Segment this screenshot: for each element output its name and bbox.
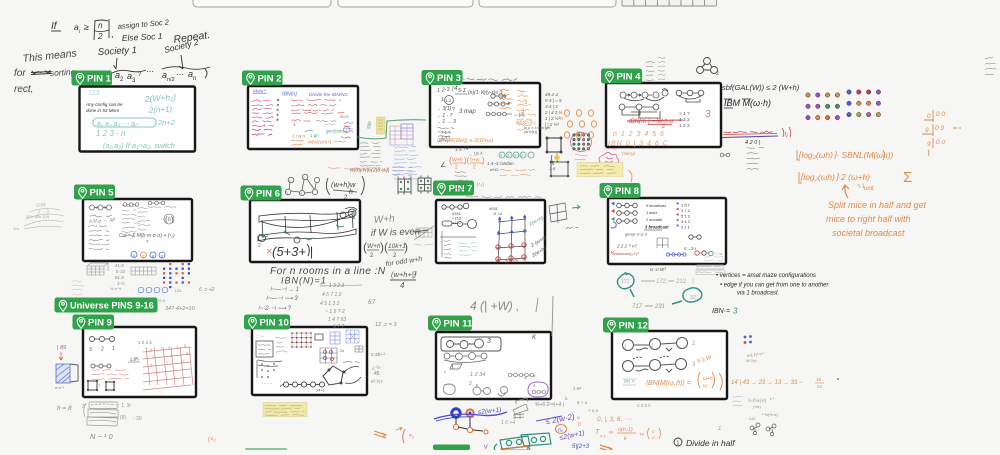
- svg-text:?: ?: [452, 107, 455, 113]
- svg-text:≥: ≥: [84, 22, 89, 32]
- svg-text:9: 9: [925, 127, 929, 134]
- svg-text:30% 13σ 10η: 30% 13σ 10η: [26, 215, 49, 219]
- svg-text:0 σ: 0 σ: [936, 139, 946, 146]
- svg-text:for: for: [14, 68, 26, 79]
- svg-text:½ σ ½: ½ σ ½: [110, 286, 122, 291]
- svg-text:2: 2: [455, 165, 458, 171]
- svg-text:Society 1: Society 1: [98, 45, 138, 58]
- svg-text:PIN 4: PIN 4: [617, 71, 642, 82]
- svg-text:W(n)(±m)+|: W(n)(±m)+|: [308, 140, 331, 145]
- svg-text:3 ¢ 2: 3 ¢ 2: [681, 219, 691, 224]
- svg-text:67: 67: [368, 299, 376, 306]
- svg-text:0, |, 3, 6, ⋯·: 0, |, 3, 6, ⋯·: [597, 416, 633, 423]
- svg-text:1 t w n: 1 t w n: [292, 134, 305, 139]
- svg-text:172: 172: [621, 279, 630, 285]
- svg-text:½·ε: ½·ε: [158, 297, 165, 303]
- svg-text:Universe PINS 9-16: Universe PINS 9-16: [70, 300, 154, 310]
- svg-text:(w+h+|): (w+h+|): [391, 270, 417, 279]
- svg-text:4 (| +W) ,: 4 (| +W) ,: [470, 299, 519, 313]
- svg-text:2 morado: 2 morado: [645, 218, 662, 222]
- svg-text:(¹₃): (¹₃): [477, 182, 484, 188]
- svg-text:⊢—⊣ ⟶ 3: ⊢—⊣ ⟶ 3: [266, 295, 298, 302]
- svg-text:| 89: | 89: [57, 345, 66, 351]
- svg-text:): ): [404, 240, 408, 254]
- svg-text:4: 4: [400, 281, 405, 290]
- svg-text:• edge if you can get from o: • edge if you can get from one to anothe…: [720, 283, 830, 289]
- svg-text:⌈log₂(ωh)⌉· SBNL(M(ωh)): ⌈log₂(ωh)⌉· SBNL(M(ωh)): [798, 150, 894, 160]
- svg-text:1 twist: 1 twist: [646, 211, 658, 215]
- svg-text:h = 8: h = 8: [57, 405, 72, 412]
- svg-text:n(n-1): n(n-1): [618, 427, 633, 433]
- svg-text:PIN 3: PIN 3: [437, 73, 461, 84]
- svg-text:3: 3: [733, 307, 738, 316]
- svg-text:PIN 12: PIN 12: [619, 320, 648, 331]
- svg-text:unit: unit: [864, 186, 874, 192]
- svg-text:1 2 3 4: 1 2 3 4: [138, 340, 152, 345]
- svg-text:34?·4+2=10: 34?·4+2=10: [165, 306, 196, 312]
- svg-text:2: 2: [651, 435, 655, 440]
- svg-text:n/2: n/2: [167, 77, 175, 83]
- svg-text:3: 3: [89, 347, 92, 353]
- svg-text:1: 1: [718, 426, 721, 432]
- svg-text:¹broadcast(¿Σ)²: ¹broadcast(¿Σ)²: [611, 251, 639, 256]
- svg-text:(n)(1·ℵ)(y-ε)≡ 3: (n)(1·ℵ)(y-ε)≡ 3: [468, 90, 503, 96]
- svg-text:w½2: w½2: [490, 167, 499, 172]
- svg-text:(sorry): (sorry): [622, 151, 635, 156]
- svg-text:5|(2+3: 5|(2+3: [572, 444, 590, 450]
- svg-text:Aℳ·σ: Aℳ·σ: [88, 219, 101, 224]
- svg-text:3·4 | 3: 3·4 | 3: [545, 104, 558, 109]
- svg-text:5·4 | = 5: 5·4 | = 5: [545, 98, 562, 103]
- svg-text:1 2 3 - n: 1 2 3 - n: [96, 129, 126, 138]
- svg-text:+ o o: + o o: [588, 408, 599, 413]
- svg-text:via 1 broadcast.: via 1 broadcast.: [737, 291, 779, 297]
- svg-text:9: 9: [927, 141, 931, 148]
- svg-text:Σ: Σ: [903, 169, 912, 186]
- svg-text:172,: 172,: [656, 279, 668, 285]
- svg-text:· 123: · 123: [172, 288, 182, 293]
- svg-text:2: 2: [662, 124, 665, 130]
- svg-text:σ→3·ε: σ→3·ε: [684, 246, 696, 251]
- svg-text:Im =: Im =: [624, 379, 636, 385]
- svg-text:n: n: [98, 21, 103, 30]
- svg-text:1 | 2 ½³: 1 | 2 ½³: [545, 115, 561, 121]
- svg-text:| | 2 ½²: | | 2 ½²: [545, 121, 559, 127]
- svg-text:n³·½?: n³·½?: [371, 378, 383, 384]
- svg-text:231: 231: [654, 304, 665, 310]
- svg-text:81.9: 81.9: [115, 275, 124, 280]
- svg-text:)(: )(: [380, 240, 388, 254]
- svg-text:1 2 3: 1 2 3: [679, 123, 690, 129]
- svg-text:1 4 ? 53: 1 4 ? 53: [328, 317, 346, 323]
- svg-text:ω+h: ω+h: [703, 376, 713, 382]
- svg-text:if W is even: if W is even: [371, 226, 420, 239]
- svg-text:1 5 7: 1 5 7: [681, 203, 691, 208]
- svg-text:→ 3(1): → 3(1): [436, 106, 452, 112]
- svg-text:2: 2: [101, 347, 104, 353]
- svg-text:mice to right half with: mice to right half with: [826, 214, 911, 224]
- svg-text:n₂: n₂: [558, 428, 563, 434]
- svg-text:J·σ: J·σ: [549, 166, 556, 171]
- svg-text:1 6 +4: 1 6 +4: [501, 420, 515, 426]
- svg-text:123: 123: [88, 90, 100, 97]
- svg-text:1, 9r: 1, 9r: [121, 403, 131, 409]
- svg-text:⊢·2·⊣ ⟶ ?: ⊢·2·⊣ ⟶ ?: [258, 305, 292, 312]
- svg-text:Divide the IBN/NC: Divide the IBN/NC: [309, 92, 348, 98]
- svg-text:u ∪ w¹: u ∪ w¹: [650, 267, 666, 273]
- svg-text:(a₁,a₂) If a₁>a₂, switch: (a₁,a₂) If a₁>a₂, switch: [103, 141, 175, 150]
- svg-text:5 ? ?: 5 ? ?: [333, 324, 344, 330]
- svg-text:done in 53 More: done in 53 More: [86, 108, 120, 113]
- svg-text:×112: ×112: [452, 220, 461, 225]
- svg-text:2 1 1: 2 1 1: [681, 225, 691, 230]
- svg-text:1,1: 1,1: [445, 98, 452, 103]
- svg-text:w·σ·?: w·σ·?: [55, 386, 64, 390]
- svg-text:k: k: [624, 436, 627, 442]
- svg-text:): ): [482, 156, 485, 165]
- svg-text:2: 2: [414, 271, 417, 277]
- svg-text:Else Soc 1: Else Soc 1: [122, 31, 163, 43]
- svg-text:~ 1 5 ? 2: ~ 1 5 ? 2: [325, 309, 345, 315]
- svg-text:1 3 ?: 1 3 ?: [441, 135, 451, 140]
- svg-text:2: 2: [97, 32, 103, 41]
- svg-text:⌈log₂(ωh)⌉·2 (ω+h): ⌈log₂(ωh)⌉·2 (ω+h): [800, 172, 870, 182]
- svg-text:∷ ⋯: ∷ ⋯: [257, 334, 265, 339]
- svg-text:1 grr: 1 grr: [310, 133, 320, 138]
- svg-text:1 3 2: 1 3 2: [679, 117, 690, 123]
- svg-text:1: 1: [112, 346, 115, 352]
- svg-text:2(n+1): 2(n+1): [148, 104, 173, 115]
- svg-text:withyN|6(2|8-w)|: withyN|6(2|8-w)|: [350, 168, 390, 174]
- svg-text:24: 24: [817, 384, 823, 389]
- svg-text:6 ⊃ +2: 6 ⊃ +2: [199, 287, 215, 293]
- svg-text:PIN 6: PIN 6: [256, 188, 280, 199]
- svg-text:h: h: [349, 189, 353, 196]
- svg-text:2n+2: 2n+2: [157, 118, 176, 127]
- svg-text:)(: )(: [464, 156, 470, 165]
- svg-text:6 + o: 6 + o: [577, 400, 588, 405]
- svg-text:¹·½(½·σ): ¹·½(½·σ): [762, 412, 778, 417]
- svg-text:1,85: 1,85: [130, 356, 140, 362]
- svg-text:4 5 1 3 2: 4 5 1 3 2: [320, 301, 340, 307]
- svg-text:- 30: - 30: [133, 416, 142, 422]
- svg-text:14 | 43 → 23 → 13 → 33 −: 14 | 43 → 23 → 13 → 33 −: [731, 380, 803, 386]
- svg-text:0: 0: [578, 422, 581, 428]
- svg-text:1: 1: [441, 97, 444, 103]
- svg-text:49·2·σ: 49·2·σ: [545, 92, 559, 97]
- svg-text:4 5 7 1 2: 4 5 7 1 2: [322, 292, 342, 298]
- svg-text:→ 1 → 3: → 1 → 3: [436, 119, 456, 125]
- svg-text:IBN(M(ω,ℎ)) =: IBN(M(ω,ℎ)) =: [646, 379, 691, 387]
- svg-text:2: 2: [473, 165, 476, 171]
- svg-text:PIN 5: PIN 5: [90, 187, 115, 198]
- svg-text:,: ,: [111, 29, 114, 39]
- svg-text:16: 16: [816, 377, 822, 382]
- svg-text:n: n: [193, 76, 196, 82]
- svg-text:0 broadcast: 0 broadcast: [646, 204, 667, 208]
- svg-text:3 broadcast: 3 broadcast: [645, 225, 669, 230]
- svg-text:2: 2: [716, 71, 719, 77]
- svg-text:¿·½·: ¿·½·: [372, 364, 382, 370]
- svg-text:0 0: 0 0: [935, 125, 944, 132]
- svg-text:1 4−3 randan: 1 4−3 randan: [487, 161, 514, 166]
- svg-text:(×₂: (×₂: [208, 437, 217, 443]
- svg-text:⋯: ⋯: [176, 70, 184, 79]
- svg-text:W.02: W.02: [340, 115, 349, 119]
- svg-text:∞: ∞: [609, 430, 613, 436]
- svg-text:32,: 32,: [690, 295, 698, 301]
- svg-text:3·2É¹·²: 3·2É¹·²: [371, 351, 386, 357]
- svg-text:0 3 5 h: 0 3 5 h: [637, 403, 651, 408]
- svg-text:⋯ ⋯: ⋯ ⋯: [262, 381, 273, 386]
- svg-text:717: 717: [632, 304, 643, 310]
- svg-text:1: 1: [677, 441, 680, 447]
- svg-text:⊢—⊣ → 1: ⊢—⊣ → 1: [270, 286, 299, 293]
- svg-text:PIN 1: PIN 1: [87, 73, 112, 84]
- svg-text:212: 212: [675, 279, 687, 285]
- svg-text:(5+3+ |: (5+3+ |: [272, 244, 313, 259]
- svg-text:a₁ a₂ a₃ ⋯ aₙ: a₁ a₂ a₃ ⋯ aₙ: [97, 121, 138, 128]
- svg-text:·· 142: ·· 142: [745, 416, 756, 421]
- svg-text:n 1 2 3 4 5 6: n 1 2 3 4 5 6: [613, 131, 665, 138]
- svg-text:h+w: h+w: [470, 158, 480, 164]
- svg-text:IBN 0 | 3 4 6 C: IBN 0 | 3 4 6 C: [608, 141, 669, 148]
- svg-text:Divide in half: Divide in half: [686, 438, 736, 448]
- svg-text:3: 3: [487, 338, 491, 345]
- svg-text:w: w: [524, 375, 527, 380]
- svg-text:5·Σ: 5·Σ: [458, 88, 467, 94]
- svg-text:↓4 ×3: ↓4 ×3: [492, 211, 503, 216]
- svg-text:> 1 ?: > 1 ?: [679, 111, 690, 117]
- svg-text:½·(½ε|·σ): ½·(½ε|·σ): [748, 398, 767, 403]
- svg-text:5 1 3: 5 1 3: [681, 214, 691, 219]
- svg-text:0 0: 0 0: [936, 111, 945, 118]
- svg-text:∠: ∠: [440, 161, 446, 169]
- svg-text:ω: ω: [703, 383, 707, 389]
- svg-text:PIN 2: PIN 2: [258, 73, 282, 84]
- svg-text:PIN 8: PIN 8: [615, 186, 640, 197]
- svg-text:sbf(GAL(W)) ≤ 2 (W+h): sbf(GAL(W)) ≤ 2 (W+h): [722, 83, 800, 92]
- svg-text:PIN 11: PIN 11: [444, 318, 473, 329]
- svg-text:45: 45: [374, 371, 380, 377]
- svg-text:W·2(σ: W·2(σ: [746, 359, 757, 363]
- svg-text:Σε: Σε: [340, 348, 344, 353]
- svg-text:2: 2: [469, 381, 472, 387]
- svg-text:W+h: W+h: [373, 214, 395, 226]
- svg-text:14+1: 14+1: [316, 388, 326, 393]
- svg-text:Split mice in half and get: Split mice in half and get: [828, 200, 927, 210]
- svg-text:3: 3: [705, 109, 711, 120]
- svg-text:2 | 4 2 ½: 2 | 4 2 ½: [544, 109, 563, 115]
- svg-text:12 ⊃ = 3: 12 ⊃ = 3: [375, 322, 398, 328]
- svg-text:2·6ᵃ: 2·6ᵃ: [573, 386, 582, 391]
- svg-text:2: 2: [258, 243, 261, 249]
- svg-text:4 2 0 |: 4 2 0 |: [745, 140, 761, 146]
- svg-text:rect,: rect,: [14, 84, 33, 95]
- svg-text:1 2 34: 1 2 34: [470, 372, 485, 378]
- svg-text:?: ?: [520, 91, 523, 97]
- svg-text:Any config can be: Any config can be: [85, 102, 123, 107]
- svg-text:IBM M(ω·h): IBM M(ω·h): [724, 98, 771, 108]
- svg-text:ε·¹: ε·¹: [770, 396, 775, 401]
- svg-text:n,1: n,1: [600, 433, 606, 438]
- svg-text:societal broadcast: societal broadcast: [832, 228, 905, 238]
- svg-text:3 map: 3 map: [459, 109, 476, 115]
- svg-text:1 7 2: 1 7 2: [681, 208, 691, 213]
- svg-text:⋯: ⋯: [146, 67, 154, 76]
- svg-text:W+h: W+h: [367, 243, 381, 250]
- svg-text:gen(σ·σ·ε) 3: gen(σ·σ·ε) 3: [625, 232, 648, 237]
- svg-text:0: 0: [927, 113, 931, 120]
- svg-text:(w·σ(ε)): (w·σ(ε)): [524, 130, 538, 134]
- svg-text:IBN·=: IBN·=: [712, 308, 730, 315]
- svg-text:(½ε): (½ε): [753, 404, 761, 409]
- svg-text:(w+h)w: (w+h)w: [331, 180, 356, 189]
- svg-text:∞: ∞: [640, 432, 644, 438]
- svg-text:5·10: 5·10: [116, 269, 126, 274]
- svg-text:PIN 10: PIN 10: [260, 317, 289, 328]
- svg-text:W+h: W+h: [452, 158, 463, 164]
- svg-text:+ ½ε: + ½ε: [715, 252, 723, 256]
- svg-text:%+6 2ⁿ=|+4·|: %+6 2ⁿ=|+4·|: [535, 402, 564, 408]
- svg-text:(8): (8): [120, 415, 126, 421]
- svg-text:→ ℳ²: → ℳ²: [103, 218, 116, 223]
- svg-text:Wσ: Wσ: [13, 226, 20, 231]
- svg-text:PIN 9: PIN 9: [88, 317, 112, 328]
- svg-text:ʷ₂: ʷ₂: [408, 434, 415, 440]
- svg-text:IBN(n): IBN(n): [282, 92, 297, 98]
- svg-text:41.9: 41.9: [115, 263, 124, 268]
- svg-text:• vertices = amat maze configu: • vertices = amat maze configurations: [716, 273, 816, 279]
- svg-text:2 2 2 ? n?: 2 2 2 ? n?: [616, 244, 638, 249]
- svg-text:N ~ ¹ 0: N ~ ¹ 0: [90, 432, 114, 441]
